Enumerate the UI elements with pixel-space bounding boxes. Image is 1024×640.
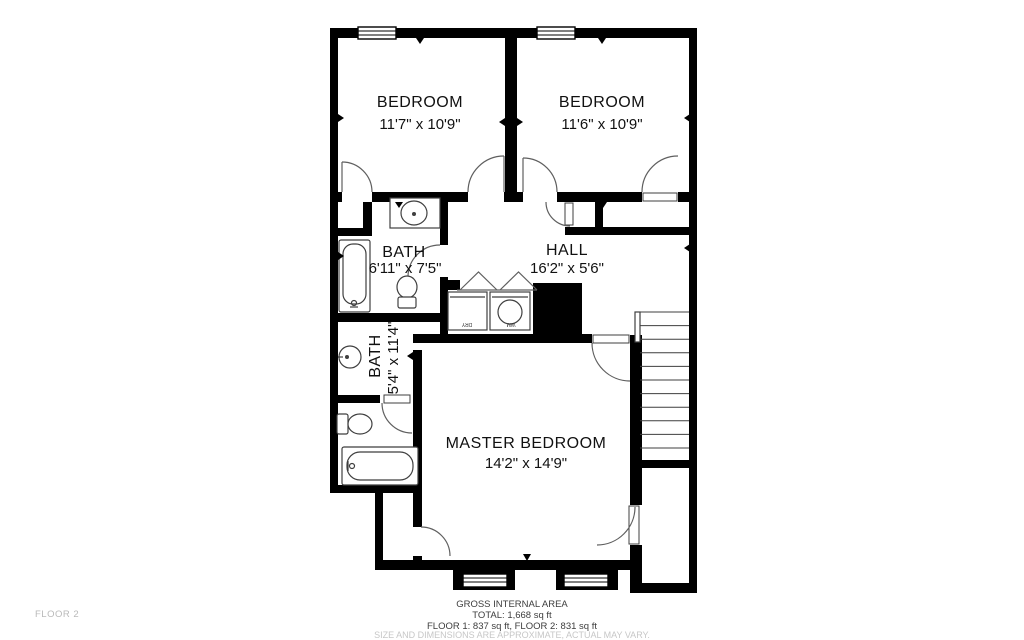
dryer-label: DRY bbox=[461, 321, 472, 327]
bathtub-bath2-icon bbox=[342, 447, 418, 485]
total-area: TOTAL: 1,668 sq ft bbox=[472, 610, 552, 621]
bath1-dims: 6'11" x 7'5" bbox=[369, 260, 442, 277]
window-bedroom1 bbox=[358, 27, 396, 39]
washer-label: WM bbox=[507, 321, 516, 327]
door-bedroom1 bbox=[468, 156, 504, 192]
bath2-label: BATH bbox=[367, 334, 384, 377]
gross-internal-area-title: GROSS INTERNAL AREA bbox=[456, 599, 568, 610]
bath2-dims: 5'4" x 11'4" bbox=[385, 322, 402, 395]
door-hall-closet bbox=[546, 202, 573, 226]
bedroom1-label: BEDROOM bbox=[377, 94, 463, 111]
bedroom2-label: BEDROOM bbox=[559, 94, 645, 111]
bedroom1-dims: 11'7" x 10'9" bbox=[379, 116, 460, 133]
sink-bath2-icon bbox=[338, 346, 361, 368]
bifold-laundry-doors bbox=[457, 272, 537, 290]
door-bedroom1-closet bbox=[342, 162, 372, 192]
disclaimer: SIZE AND DIMENSIONS ARE APPROXIMATE, ACT… bbox=[374, 630, 650, 640]
bath1-label: BATH bbox=[382, 244, 425, 261]
bay-window-left bbox=[463, 574, 507, 587]
window-bedroom2 bbox=[537, 27, 575, 39]
stairs bbox=[635, 312, 689, 448]
bathtub-bath1-icon bbox=[339, 240, 370, 312]
toilet-bath1-icon bbox=[397, 276, 417, 308]
master-bedroom-dims: 14'2" x 14'9" bbox=[485, 455, 567, 472]
door-master-closet-right bbox=[597, 506, 639, 545]
bedroom2-dims: 11'6" x 10'9" bbox=[561, 116, 642, 133]
door-master bbox=[592, 335, 630, 381]
footer: GROSS INTERNAL AREA TOTAL: 1,668 sq ft F… bbox=[374, 599, 650, 640]
door-bedroom2 bbox=[523, 158, 557, 192]
toilet-bath2-icon bbox=[337, 414, 372, 434]
hall-label: HALL bbox=[546, 242, 588, 259]
door-bath2 bbox=[382, 395, 412, 433]
hall-dims: 16'2" x 5'6" bbox=[530, 260, 604, 277]
door-bedroom2-closet bbox=[642, 156, 678, 201]
floor-plan-canvas: BEDROOM 11'7" x 10'9" BEDROOM 11'6" x 10… bbox=[0, 0, 1024, 640]
door-master-closet-left bbox=[421, 527, 450, 556]
floor-plan-page: BEDROOM 11'7" x 10'9" BEDROOM 11'6" x 10… bbox=[0, 0, 1024, 640]
bay-window-right bbox=[564, 574, 608, 587]
floor-number-tag: FLOOR 2 bbox=[35, 609, 79, 620]
master-bedroom-label: MASTER BEDROOM bbox=[446, 435, 607, 452]
